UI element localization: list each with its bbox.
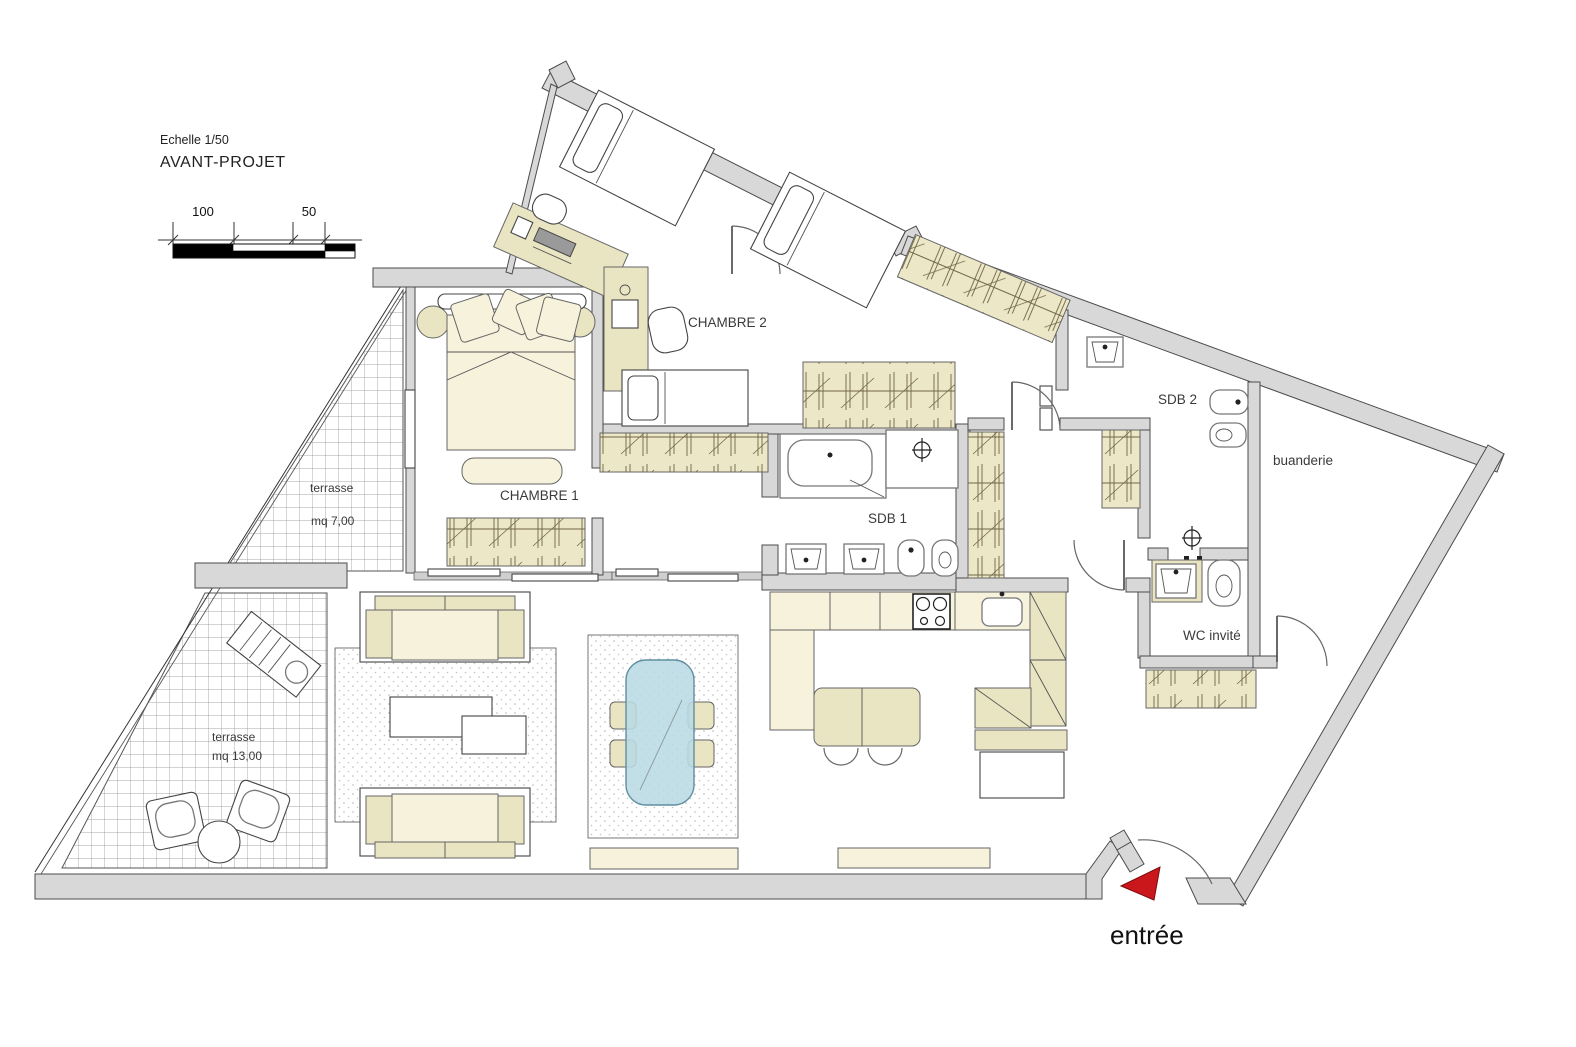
terrace-table: [198, 821, 240, 863]
sofa-top: [360, 592, 530, 662]
sink-double: [786, 544, 884, 574]
bed-single-c: [622, 370, 748, 426]
scale-100: 100: [192, 204, 214, 219]
bathtub: [780, 434, 886, 498]
label-terrasse-upper-area: mq 7,00: [311, 514, 355, 528]
label-chambre2: CHAMBRE 2: [688, 315, 767, 330]
label-wc-invite: WC invité: [1183, 628, 1241, 643]
project-title: AVANT-PROJET: [160, 154, 286, 171]
sdb2-bidet: [1210, 423, 1246, 447]
entrance-arrow-icon: [1121, 867, 1160, 900]
bed-single-a: [560, 90, 715, 226]
floor-plan-page: Echelle 1/50 AVANT-PROJET 100 50 CHAMBRE…: [0, 0, 1576, 1047]
bidet: [932, 540, 958, 576]
sofa-bottom: [360, 788, 530, 858]
toilet: [898, 540, 924, 576]
sdb1-fixtures: [780, 430, 958, 576]
bed-bench: [462, 458, 562, 484]
wardrobe-chambre1: [447, 518, 585, 566]
door-dressing-top: [1012, 382, 1060, 430]
chambre1-furniture: [417, 288, 595, 566]
label-sdb1: SDB 1: [868, 511, 907, 526]
label-terrasse-lower-area: mq 13,00: [212, 749, 262, 763]
kitchen: [770, 592, 1067, 798]
stove: [913, 594, 950, 629]
label-terrasse-upper: terrasse: [310, 481, 354, 495]
coffee-table-2: [462, 716, 526, 754]
wc-toilet: [1208, 560, 1240, 606]
door-dressing-bottom: [1074, 540, 1124, 590]
label-terrasse-lower: terrasse: [212, 730, 256, 744]
scale-bar: 100 50: [158, 204, 362, 258]
label-chambre1: CHAMBRE 1: [500, 488, 579, 503]
kitchen-tall-units: [1030, 592, 1066, 726]
wc-invite-fixtures: [1152, 560, 1240, 606]
desk-chair-2: [646, 305, 690, 356]
sdb2-toilet: [1210, 390, 1248, 414]
terrace-upper: [225, 290, 403, 571]
floor-plan-drawing: Echelle 1/50 AVANT-PROJET 100 50 CHAMBRE…: [0, 0, 1576, 1047]
label-entree: entrée: [1110, 920, 1184, 950]
entrance-wardrobe: [1146, 670, 1256, 708]
sdb2-sink: [1087, 337, 1123, 367]
scale-50: 50: [302, 204, 316, 219]
desk-screen: [612, 300, 638, 328]
buanderie-fixtures: [1182, 526, 1202, 561]
label-buanderie: buanderie: [1273, 453, 1333, 468]
kitchen-counter-left: [770, 630, 814, 730]
label-sdb2: SDB 2: [1158, 392, 1197, 407]
dining-area: [588, 635, 738, 838]
living-room: [335, 592, 556, 858]
scale-label: Echelle 1/50: [160, 133, 229, 147]
kitchen-island: [814, 688, 920, 746]
bar-stools: [824, 748, 902, 765]
corridor-wardrobe: [600, 433, 768, 472]
entrance-marker: entrée: [1110, 867, 1184, 950]
title-block: Echelle 1/50 AVANT-PROJET: [160, 133, 286, 171]
nightstand-left: [417, 306, 449, 338]
dressing-wardrobes: [968, 430, 1140, 578]
shower: [886, 430, 958, 488]
wardrobe-chambre2: [803, 362, 955, 428]
chambre2-furniture: [494, 90, 1071, 428]
terrace-armchair-1: [145, 791, 206, 851]
door-buanderie: [1277, 616, 1327, 666]
dining-table: [626, 660, 694, 805]
sideboards: [590, 848, 990, 869]
